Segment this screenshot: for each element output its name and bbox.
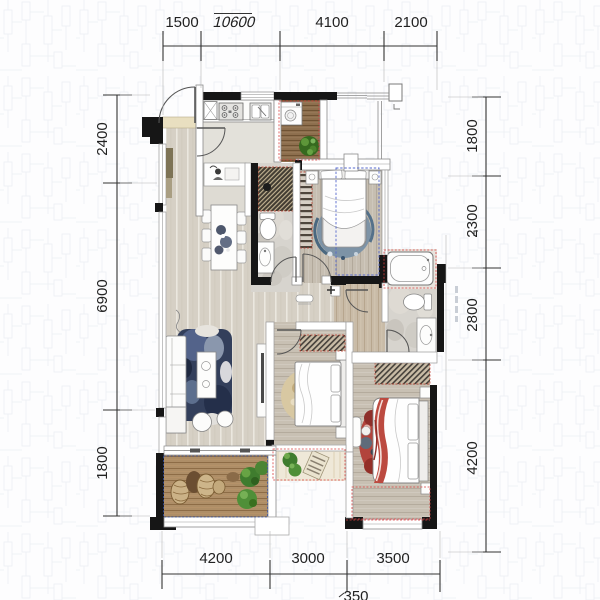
svg-text:4100: 4100 (315, 14, 348, 31)
svg-text:2300: 2300 (464, 204, 481, 237)
svg-text:2100: 2100 (394, 14, 427, 31)
svg-text:3500: 3500 (376, 550, 409, 567)
svg-text:6900: 6900 (94, 279, 111, 312)
svg-text:2400: 2400 (94, 122, 111, 155)
svg-text:4200: 4200 (464, 441, 481, 474)
svg-text:1800: 1800 (94, 446, 111, 479)
svg-text:350: 350 (343, 588, 368, 600)
svg-text:2800: 2800 (464, 298, 481, 331)
svg-text:10600: 10600 (211, 14, 257, 31)
svg-text:4200: 4200 (199, 550, 232, 567)
svg-text:1500: 1500 (165, 14, 198, 31)
svg-text:3000: 3000 (291, 550, 324, 567)
svg-text:1800: 1800 (464, 119, 481, 152)
